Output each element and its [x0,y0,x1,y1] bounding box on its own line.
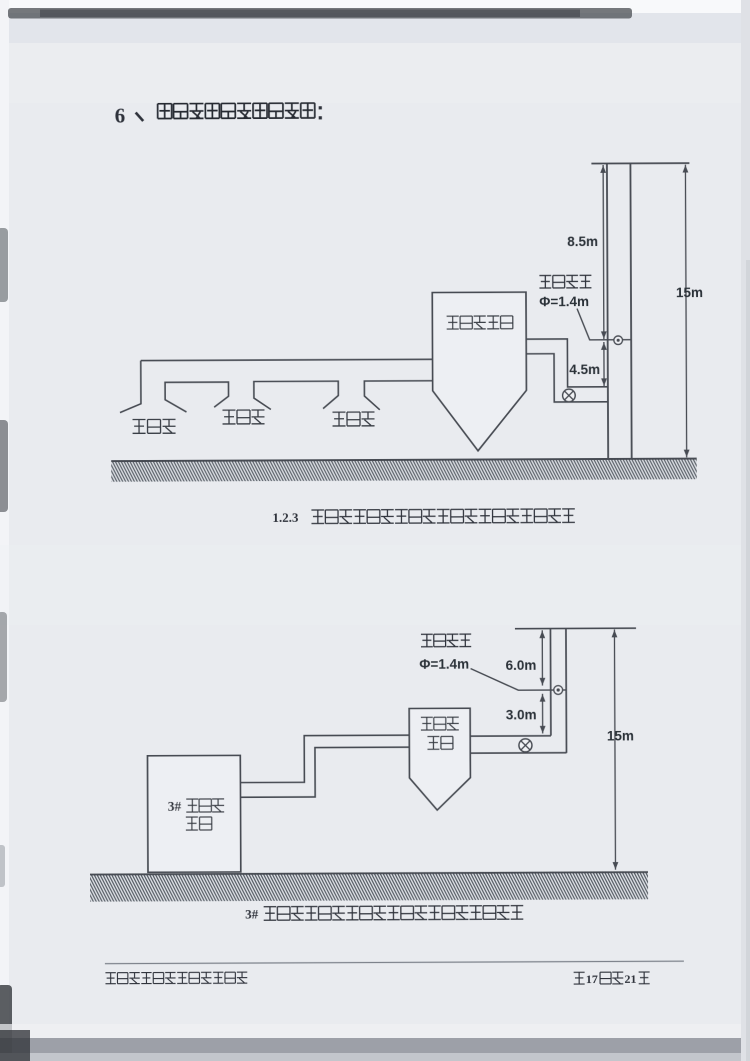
svg-text:4.5m: 4.5m [569,362,600,377]
svg-text:Φ=1.4m: Φ=1.4m [539,294,589,309]
svg-text:1.2.3: 1.2.3 [272,510,299,525]
svg-text:15m: 15m [676,285,703,300]
svg-text:6.0m: 6.0m [506,658,537,673]
svg-text:8.5m: 8.5m [567,234,598,249]
svg-text:3#: 3# [168,799,182,814]
svg-text:3#: 3# [245,907,259,922]
svg-text:6: 6 [115,104,126,128]
svg-text:Φ=1.4m: Φ=1.4m [419,656,469,671]
svg-text:15m: 15m [607,728,634,743]
svg-text:3.0m: 3.0m [506,707,537,722]
svg-text:17: 17 [586,972,598,986]
svg-text:21: 21 [624,972,636,986]
